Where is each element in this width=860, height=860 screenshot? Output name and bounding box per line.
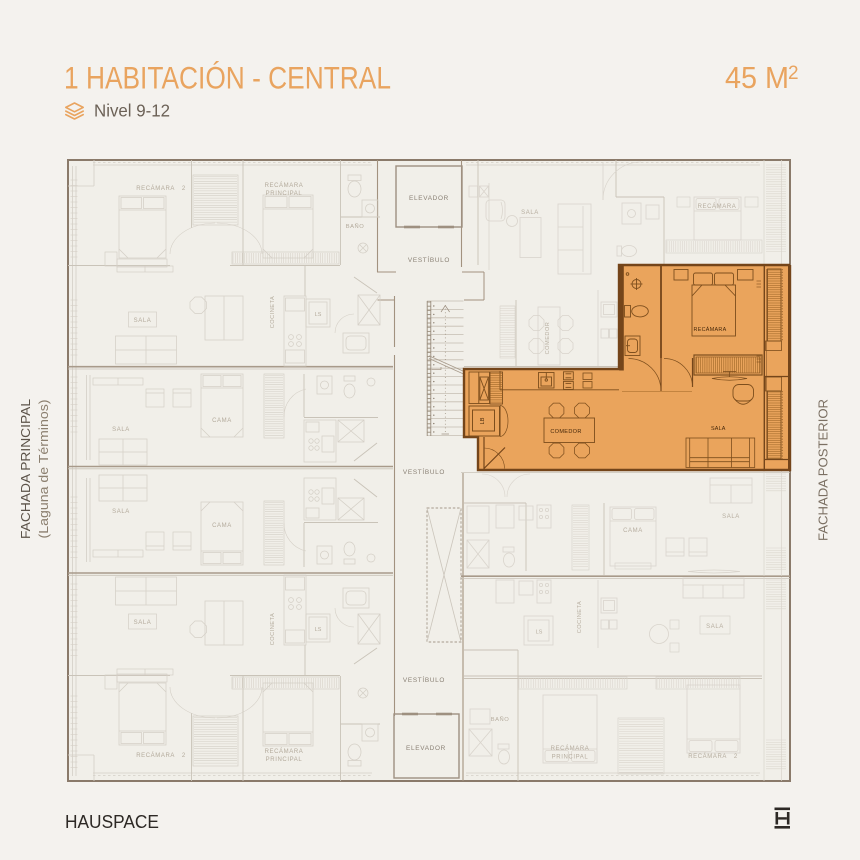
svg-text:RECÁMARA: RECÁMARA (551, 745, 590, 752)
svg-text:SALA: SALA (722, 514, 740, 520)
svg-text:LS: LS (315, 627, 322, 633)
svg-text:COMEDOR: COMEDOR (545, 322, 551, 355)
svg-text:BAÑO: BAÑO (346, 223, 364, 230)
svg-text:RECÁMARA: RECÁMARA (265, 182, 304, 189)
svg-text:LB: LB (480, 417, 486, 424)
svg-text:PRINCIPAL: PRINCIPAL (552, 755, 589, 761)
svg-text:FACHADA PRINCIPAL: FACHADA PRINCIPAL (18, 399, 33, 539)
svg-text:COCINETA: COCINETA (577, 601, 583, 634)
svg-text:RECÁMARA: RECÁMARA (698, 203, 737, 210)
svg-text:SALA: SALA (112, 509, 130, 515)
svg-text:SALA: SALA (521, 210, 539, 216)
svg-text:HAUSPACE: HAUSPACE (65, 812, 159, 832)
svg-text:SALA: SALA (112, 427, 130, 433)
svg-text:1 HABITACIÓN - CENTRAL: 1 HABITACIÓN - CENTRAL (64, 60, 391, 96)
svg-text:FACHADA POSTERIOR: FACHADA POSTERIOR (816, 399, 831, 541)
svg-text:SALA: SALA (706, 624, 724, 630)
svg-text:VESTÍBULO: VESTÍBULO (403, 467, 445, 476)
svg-text:COMEDOR: COMEDOR (550, 429, 581, 435)
svg-text:PRINCIPAL: PRINCIPAL (266, 757, 303, 763)
svg-text:SALA: SALA (134, 318, 152, 324)
svg-text:PRINCIPAL: PRINCIPAL (266, 191, 303, 197)
svg-text:Nivel 9-12: Nivel 9-12 (94, 101, 170, 121)
svg-text:LS: LS (315, 312, 322, 318)
svg-text:RECÁMARA 2: RECÁMARA 2 (688, 753, 738, 760)
svg-text:VESTÍBULO: VESTÍBULO (403, 675, 445, 684)
svg-text:CAMA: CAMA (212, 418, 232, 424)
svg-text:RECÁMARA: RECÁMARA (265, 748, 304, 755)
svg-text:COCINETA: COCINETA (270, 296, 276, 329)
svg-text:RECÁMARA 2: RECÁMARA 2 (136, 185, 186, 192)
svg-text:RECÁMARA 2: RECÁMARA 2 (136, 752, 186, 759)
svg-text:SALA: SALA (134, 620, 152, 626)
svg-text:(Laguna de Términos): (Laguna de Términos) (37, 400, 51, 539)
svg-text:LS: LS (536, 630, 543, 636)
svg-text:ELEVADOR: ELEVADOR (406, 745, 446, 752)
svg-text:COCINETA: COCINETA (270, 613, 276, 646)
svg-text:RECÁMARA: RECÁMARA (694, 326, 727, 333)
svg-text:BAÑO: BAÑO (491, 716, 509, 723)
svg-text:45 M: 45 M (725, 60, 789, 95)
svg-text:2: 2 (788, 63, 799, 84)
svg-text:CAMA: CAMA (212, 523, 232, 529)
svg-text:VESTÍBULO: VESTÍBULO (408, 255, 450, 264)
svg-text:CAMA: CAMA (623, 528, 643, 534)
svg-text:ELEVADOR: ELEVADOR (409, 195, 449, 202)
svg-text:SALA: SALA (711, 426, 726, 432)
